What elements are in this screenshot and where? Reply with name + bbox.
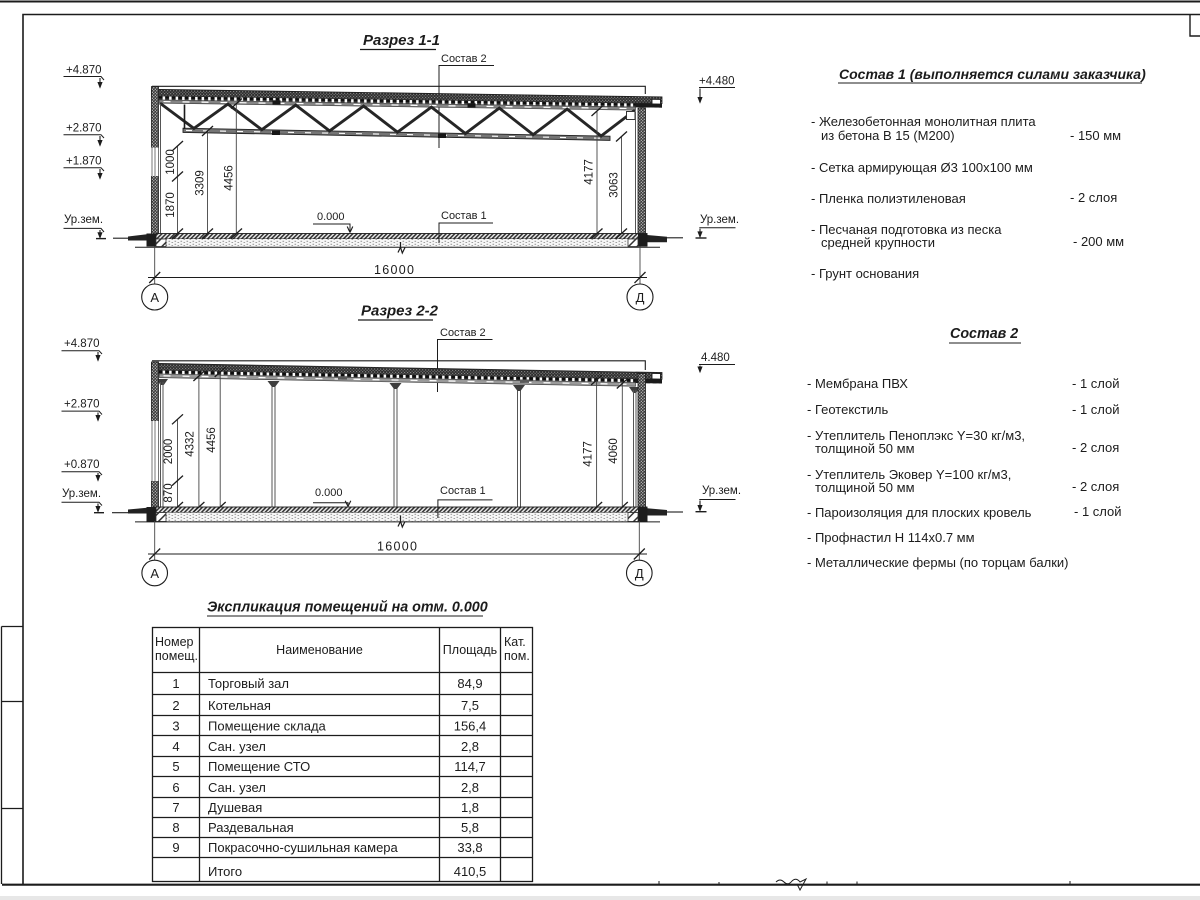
svg-text:средней крупности: средней крупности [821,235,935,250]
svg-text:4060: 4060 [608,438,620,464]
svg-text:Ур.зем.: Ур.зем. [702,485,741,497]
svg-text:Помещение склада: Помещение склада [208,719,327,734]
svg-text:Состав 1 (выполняется силами з: Состав 1 (выполняется силами заказчика) [839,66,1146,82]
svg-text:5: 5 [172,759,179,774]
svg-text:- Геотекстиль: - Геотекстиль [807,402,888,417]
svg-text:+0.870: +0.870 [64,459,100,471]
svg-text:- 200 мм: - 200 мм [1073,234,1124,249]
svg-text:+1.870: +1.870 [66,156,102,168]
svg-text:16000: 16000 [374,263,415,277]
svg-text:- Пленка полиэтиленовая: - Пленка полиэтиленовая [811,191,966,206]
svg-text:из бетона В 15 (М200): из бетона В 15 (М200) [821,128,955,143]
svg-text:+2.870: +2.870 [64,399,100,411]
svg-text:толщиной 50 мм: толщиной 50 мм [815,441,915,456]
svg-text:Состав 1: Состав 1 [441,210,487,222]
svg-text:3063: 3063 [609,172,621,198]
svg-text:Ур.зем.: Ур.зем. [700,214,739,226]
svg-text:Номер: Номер [155,635,194,649]
svg-text:толщиной 50 мм: толщиной 50 мм [815,480,915,495]
svg-text:Состав 2: Состав 2 [950,326,1018,342]
svg-text:Состав 2: Состав 2 [441,53,487,65]
svg-text:16000: 16000 [377,540,418,554]
svg-text:А: А [150,566,159,581]
svg-text:Состав 1: Состав 1 [440,485,486,497]
svg-text:Площадь: Площадь [443,643,497,657]
svg-text:Душевая: Душевая [208,800,262,815]
svg-text:7: 7 [172,800,179,815]
svg-text:2000: 2000 [163,439,175,465]
svg-text:Итого: Итого [208,864,242,879]
svg-text:1,8: 1,8 [461,800,479,815]
svg-text:Раздевальная: Раздевальная [208,820,294,835]
svg-text:6: 6 [172,780,179,795]
svg-text:А: А [150,290,159,305]
svg-text:помещ.: помещ. [155,649,198,663]
svg-text:+4.870: +4.870 [66,65,102,77]
svg-text:2,8: 2,8 [461,780,479,795]
svg-text:Кат.: Кат. [504,635,526,649]
svg-text:1000: 1000 [165,149,177,175]
svg-text:8: 8 [172,820,179,835]
svg-text:+2.870: +2.870 [66,123,102,135]
svg-text:Ур.зем.: Ур.зем. [64,214,103,226]
svg-text:Котельная: Котельная [208,698,271,713]
svg-text:4177: 4177 [583,441,595,467]
svg-text:4456: 4456 [224,165,236,191]
svg-text:- Профнастил Н 114х0.7 мм: - Профнастил Н 114х0.7 мм [807,530,975,545]
svg-text:- 150 мм: - 150 мм [1070,128,1121,143]
svg-text:Состав 2: Состав 2 [440,327,486,339]
svg-text:84,9: 84,9 [457,676,482,691]
svg-text:114,7: 114,7 [454,759,486,774]
svg-text:- Грунт основания: - Грунт основания [811,266,919,281]
svg-text:Сан. узел: Сан. узел [208,780,266,795]
svg-text:4456: 4456 [206,427,218,453]
svg-text:156,4: 156,4 [454,719,487,734]
svg-text:Наименование: Наименование [276,643,363,657]
svg-text:- Пароизоляция для плоских кро: - Пароизоляция для плоских кровель [807,505,1032,520]
svg-text:- 2 слоя: - 2 слоя [1070,190,1117,205]
svg-text:2: 2 [172,698,179,713]
svg-text:Помещение СТО: Помещение СТО [208,759,310,774]
svg-text:870: 870 [163,483,175,502]
svg-text:9: 9 [172,840,179,855]
svg-text:Экспликация помещений на отм.: Экспликация помещений на отм. 0.000 [207,600,488,616]
svg-text:410,5: 410,5 [454,864,487,879]
svg-text:4332: 4332 [185,431,197,457]
svg-text:0.000: 0.000 [315,487,343,499]
svg-text:Разрез 1-1: Разрез 1-1 [363,32,440,49]
svg-text:Д: Д [635,566,644,581]
svg-text:Д: Д [636,290,645,305]
svg-text:0.000: 0.000 [317,211,345,223]
svg-text:- Металлические фермы (по торц: - Металлические фермы (по торцам балки) [807,555,1068,570]
svg-text:2,8: 2,8 [461,739,479,754]
svg-text:Сан. узел: Сан. узел [208,739,266,754]
svg-text:4: 4 [172,739,179,754]
svg-text:3309: 3309 [195,170,207,196]
svg-text:- 1 слой: - 1 слой [1074,504,1122,519]
svg-text:Покрасочно-сушильная камера: Покрасочно-сушильная камера [208,840,399,855]
svg-text:- Сетка армирующая Ø3 100х100: - Сетка армирующая Ø3 100х100 мм [811,160,1033,175]
svg-text:- 2 слоя: - 2 слоя [1072,440,1119,455]
svg-text:пом.: пом. [504,649,530,663]
svg-text:- 2 слоя: - 2 слоя [1072,479,1119,494]
svg-text:1: 1 [172,676,179,691]
svg-text:7,5: 7,5 [461,698,479,713]
svg-text:3: 3 [172,719,179,734]
svg-text:- 1 слой: - 1 слой [1072,402,1120,417]
svg-text:Разрез 2-2: Разрез 2-2 [361,303,439,320]
svg-text:Торговый зал: Торговый зал [208,676,289,691]
svg-text:- Железобетонная монолитная п: - Железобетонная монолитная плита [811,114,1036,129]
svg-text:5,8: 5,8 [461,820,479,835]
svg-text:- 1 слой: - 1 слой [1072,376,1120,391]
svg-text:33,8: 33,8 [457,840,482,855]
svg-text:+4.480: +4.480 [699,76,735,88]
svg-text:Ур.зем.: Ур.зем. [62,488,101,500]
svg-text:1870: 1870 [165,192,177,218]
svg-text:4177: 4177 [584,159,596,185]
svg-text:- Мембрана ПВХ: - Мембрана ПВХ [807,376,908,391]
svg-text:+4.870: +4.870 [64,338,100,350]
svg-text:4.480: 4.480 [701,352,730,364]
